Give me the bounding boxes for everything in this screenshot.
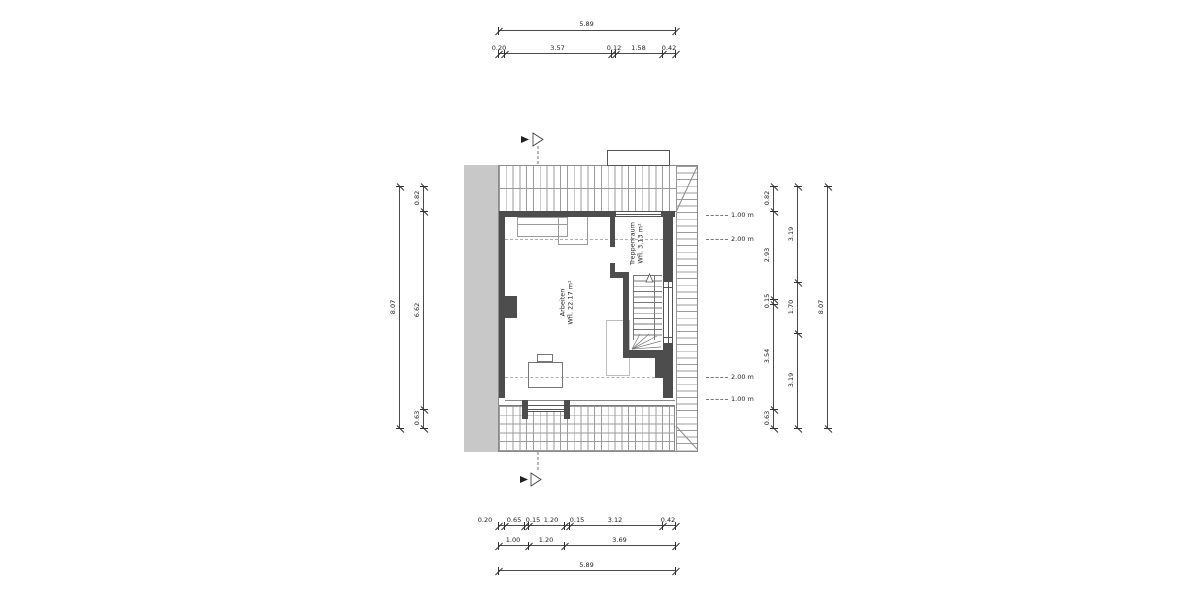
dim-label: 0.63 bbox=[413, 378, 423, 458]
height-marker-label: 1.00 m bbox=[731, 395, 773, 403]
dim-chain-top-overall bbox=[498, 30, 675, 31]
section-marker-bottom bbox=[520, 452, 541, 486]
section-flag-icon bbox=[531, 473, 541, 486]
wall-stair-side bbox=[623, 278, 629, 354]
stair-flight bbox=[633, 275, 662, 340]
party-wall-band bbox=[464, 165, 498, 452]
dim-chain-right-overall bbox=[827, 186, 828, 428]
dim-label: 0.15 bbox=[565, 516, 589, 524]
wall-partition-lower bbox=[610, 263, 615, 272]
room-label-arbeiten: Arbeiten Wfl. 22.17 m² bbox=[560, 263, 575, 343]
height-marker-label: 1.00 m bbox=[731, 211, 773, 219]
dim-label: 0.63 bbox=[763, 378, 773, 458]
section-flag-icon bbox=[533, 133, 543, 146]
wall-stair-bottom bbox=[623, 350, 663, 358]
stair-window bbox=[663, 282, 673, 343]
wall-bottom-line bbox=[505, 400, 675, 401]
wall-right-upper bbox=[663, 217, 673, 282]
section-arrow-icon bbox=[520, 476, 528, 483]
roof-hatch-right bbox=[676, 166, 697, 451]
height-pointer-dash bbox=[706, 215, 728, 216]
dim-label: 1.20 bbox=[539, 516, 563, 524]
height-marker-label: 2.00 m bbox=[731, 373, 773, 381]
dim-chain-left-overall bbox=[399, 186, 400, 428]
height-pointer-dash bbox=[706, 399, 728, 400]
wall-right-lower bbox=[663, 343, 673, 398]
room-label-treppenraum: Treppenraum Wfl. 3.13 m² bbox=[630, 204, 645, 284]
height-pointer-dash bbox=[706, 377, 728, 378]
desk-return-outline bbox=[558, 215, 588, 245]
room-area: Wfl. 3.13 m² bbox=[637, 204, 645, 284]
dim-label: 5.89 bbox=[498, 561, 675, 569]
roof-hatch-top bbox=[499, 166, 676, 212]
dim-chain-bottom-mid bbox=[498, 545, 675, 546]
dim-label: 0.42 bbox=[655, 44, 683, 52]
dim-label: 3.69 bbox=[564, 536, 675, 544]
dim-label: 3.19 bbox=[787, 194, 797, 274]
dim-label: 0.20 bbox=[473, 516, 497, 524]
window-post-right bbox=[564, 400, 570, 419]
dim-label: 1.70 bbox=[787, 267, 797, 347]
dim-label: 3.57 bbox=[504, 44, 611, 52]
dim-chain-right-segments bbox=[773, 186, 774, 428]
dim-chain-bottom-overall bbox=[498, 570, 675, 571]
bottom-window bbox=[528, 405, 564, 412]
room-area: Wfl. 22.17 m² bbox=[567, 263, 575, 343]
height-pointer-dash bbox=[706, 239, 728, 240]
dim-label: 1.00 bbox=[498, 536, 528, 544]
dim-label: 8.07 bbox=[389, 267, 399, 347]
dim-chain-right-mid bbox=[797, 186, 798, 428]
wall-top bbox=[499, 211, 612, 217]
dim-label: 1.20 bbox=[528, 536, 564, 544]
dim-label: 0.42 bbox=[656, 516, 680, 524]
dim-label: 3.12 bbox=[603, 516, 627, 524]
height-marker-label: 2.00 m bbox=[731, 235, 773, 243]
stair-handrail bbox=[654, 276, 655, 340]
dim-label: 0.82 bbox=[413, 158, 423, 238]
dormer-outline bbox=[607, 150, 670, 166]
section-arrow-icon bbox=[521, 136, 529, 143]
table-outline bbox=[528, 362, 563, 388]
section-marker-top bbox=[521, 133, 543, 166]
dim-label: 3.19 bbox=[787, 340, 797, 420]
chair-outline bbox=[537, 354, 553, 362]
floor-plan-canvas: 5.89 0.20 3.57 0.12 1.58 0.42 0.20 0.65 … bbox=[0, 0, 1200, 600]
roof-hatch-midline bbox=[499, 188, 676, 189]
dim-label: 6.62 bbox=[413, 270, 423, 350]
dim-label: 5.89 bbox=[498, 20, 675, 28]
dim-chain-top-segments bbox=[498, 53, 675, 54]
dim-chain-left-segments bbox=[423, 186, 424, 428]
dim-label: 8.07 bbox=[817, 267, 827, 347]
wall-partition-upper bbox=[610, 217, 615, 247]
wall-left-pier bbox=[499, 296, 517, 318]
dim-chain-bottom-segments bbox=[498, 525, 675, 526]
